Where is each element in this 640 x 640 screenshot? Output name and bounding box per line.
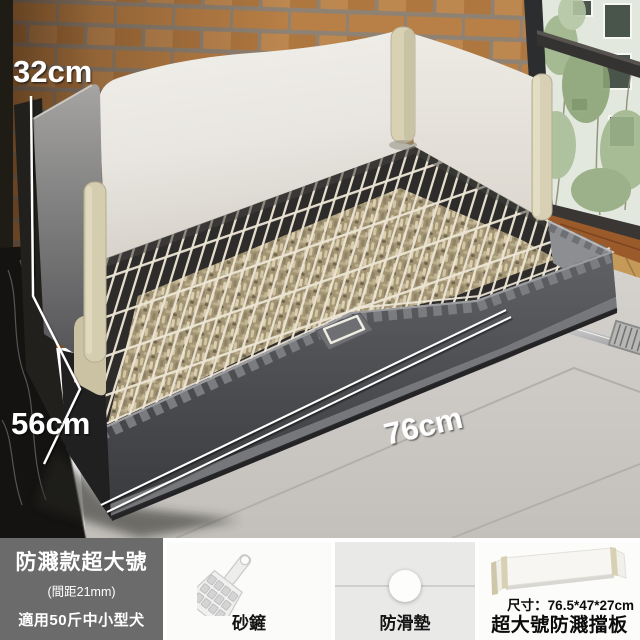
corner-post-right [532,74,552,220]
spec-suitability: 適用50斤中小型犬 [0,609,163,630]
scoop-label: 砂鏟 [167,609,331,634]
pad-label: 防滑墊 [335,609,475,634]
accessory-pad-panel: 防滑墊 [335,542,475,640]
spec-badge: 防濺款超大號 (間距21mm) 適用50斤中小型犬 [0,538,163,640]
accessory-scoop-panel: 砂鏟 [167,542,331,640]
baffle-name-label: 超大號防濺擋板 [479,610,640,637]
bottom-info-strip: 防濺款超大號 (間距21mm) 適用50斤中小型犬 砂鏟 [0,538,640,640]
product-listing-image: 32cm 56cm 76cm 防濺款超大號 (間距21mm) 適用50斤中小型犬 [0,0,640,640]
dimension-height-label: 32cm [13,54,92,89]
corner-post-back [389,27,417,150]
splash-baffle-thumbnail [484,544,636,600]
litter-scoop-icon [197,544,301,616]
baffle-panel: 尺寸：76.5*47*27cm 超大號防濺擋板 [479,542,640,640]
product-photo: 32cm 56cm 76cm [0,0,640,538]
spec-pitch: (間距21mm) [0,581,163,600]
spec-title: 防濺款超大號 [0,551,163,574]
anti-slip-pad-icon [389,570,421,602]
dimension-depth-label: 56cm [11,406,90,441]
